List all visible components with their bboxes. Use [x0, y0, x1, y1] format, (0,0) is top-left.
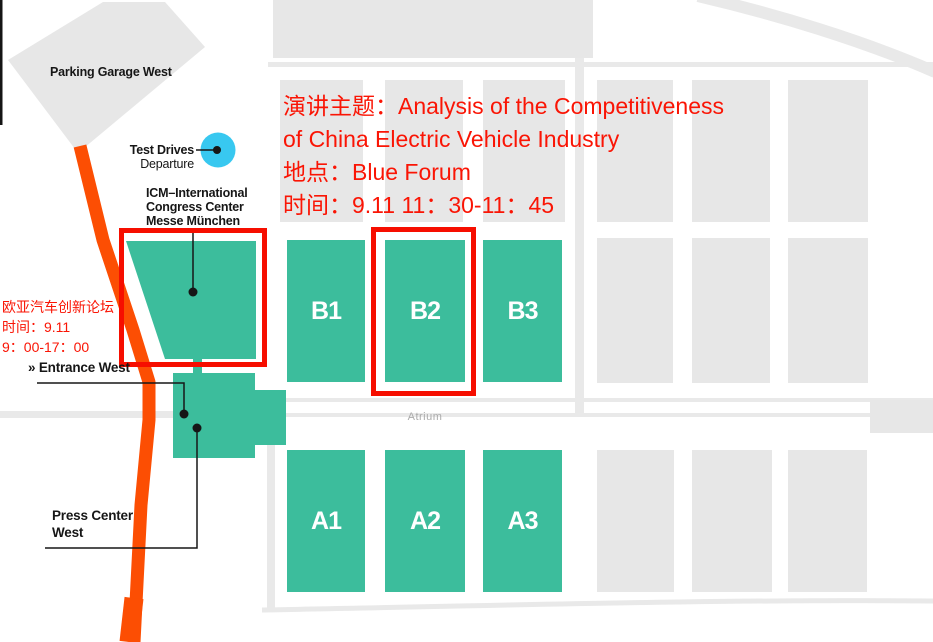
press-center-label-line2: West [52, 526, 83, 540]
entrance-west-label: » Entrance West [28, 361, 130, 375]
road-arc-topright [698, 0, 933, 72]
icm-label-line3: Messe München [146, 214, 240, 228]
test-drives-dot [213, 146, 221, 154]
building-block-top-strip [273, 0, 593, 58]
building-block [692, 450, 772, 592]
icm-highlight-box [119, 228, 267, 367]
icm-label-line1: ICM–International [146, 186, 247, 200]
hall-b1-label: B1 [311, 297, 341, 326]
entrance-dot [180, 410, 189, 419]
hall-a1: A1 [287, 450, 365, 592]
session-topic-line1: 演讲主题：Analysis of the Competitiveness [283, 90, 724, 123]
road-bottom-curve [262, 601, 933, 610]
orange-road [80, 146, 149, 642]
left-edge-line [0, 0, 3, 125]
press-center-dot [193, 424, 202, 433]
building-block [597, 238, 673, 383]
atrium-road-upper [268, 398, 933, 402]
hall-b1: B1 [287, 240, 365, 382]
press-center-label-line1: Press Center [52, 509, 133, 523]
orange-road-tail [129, 598, 134, 642]
entrance-callout-line [37, 383, 184, 412]
building-block-right-edge [870, 400, 933, 433]
icm-label-line2: Congress Center [146, 200, 244, 214]
hall-b3-label: B3 [508, 297, 538, 326]
hall-a3: A3 [483, 450, 562, 592]
hall-b3: B3 [483, 240, 562, 382]
messe-muenchen-map: B1 B2 B3 A1 A2 A3 Parking Garage West Te… [0, 0, 933, 642]
hall-a2-label: A2 [410, 507, 440, 536]
forum-date: 时间：9.11 [2, 317, 70, 337]
road-vertical-right [575, 0, 584, 415]
building-block [597, 450, 674, 592]
hall-a1-label: A1 [311, 507, 341, 536]
building-block [788, 450, 867, 592]
hall-a2: A2 [385, 450, 465, 592]
departure-label: Departure [110, 157, 194, 171]
session-topic-line2: of China Electric Vehicle Industry [283, 123, 619, 156]
forum-name: 欧亚汽车创新论坛 [2, 297, 114, 317]
building-block [788, 80, 868, 222]
test-drives-label: Test Drives [110, 143, 194, 157]
forum-hours: 9：00-17：00 [2, 337, 89, 357]
hall-b2-highlight-box [371, 227, 476, 396]
building-block [788, 238, 868, 383]
atrium-label: Atrium [390, 411, 460, 423]
atrium-road-lower [268, 413, 933, 417]
road-horizontal-top [268, 62, 933, 67]
parking-garage-label: Parking Garage West [50, 65, 172, 79]
building-block [692, 238, 770, 383]
session-location: 地点：Blue Forum [283, 156, 471, 189]
session-time: 时间：9.11 11：30-11：45 [283, 189, 554, 222]
hall-a3-label: A3 [508, 507, 538, 536]
